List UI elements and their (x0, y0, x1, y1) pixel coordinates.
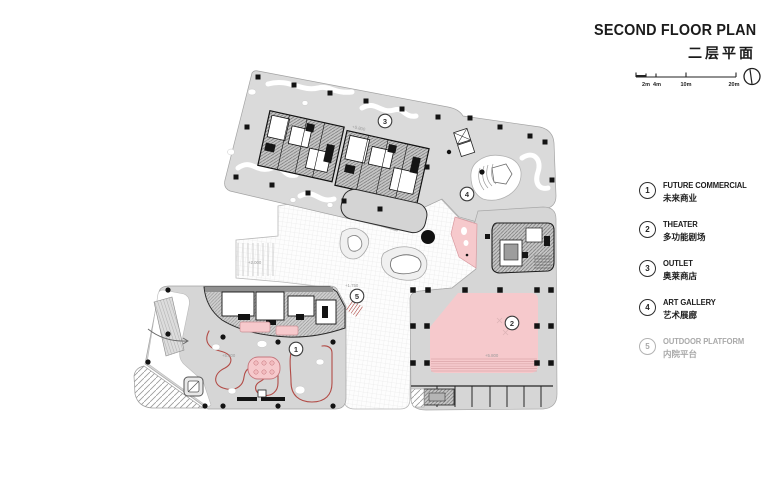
seating-table (248, 357, 280, 379)
legend-label-en: FUTURE COMMERCIAL (663, 181, 747, 190)
legend-label-en: OUTLET (663, 259, 695, 268)
legend-item-theater: 2 THEATER 多功能剧场 (639, 220, 779, 243)
legend-item-outlet: 3 OUTLET 奥莱商店 (639, 259, 779, 282)
svg-text:+1.750: +1.750 (345, 283, 359, 288)
legend-badge-5: 5 (639, 338, 656, 355)
column (485, 234, 490, 239)
escalator-bar (237, 397, 257, 401)
svg-text:+5.800: +5.800 (485, 353, 499, 358)
legend-label-zh: 内院平台 (663, 348, 748, 360)
svg-text:+5.800: +5.800 (222, 353, 236, 358)
svg-text:4m: 4m (653, 82, 661, 88)
legend-label-en: OUTDOOR PLATFORM (663, 337, 744, 346)
title-block: SECOND FLOOR PLAN 二层平面 (576, 22, 756, 63)
column-dot (447, 150, 451, 154)
wedge-blob (464, 240, 469, 246)
floor-plan-sheet: 1 2 3 4 5 +5.800 +1.750 +5.800 +5.800 +2… (0, 0, 780, 488)
svg-text:+2.000: +2.000 (248, 260, 262, 265)
legend-label-zh: 艺术展廊 (663, 309, 719, 321)
legend-label-en: THEATER (663, 220, 703, 229)
legend: 1 FUTURE COMMERCIAL 未来商业 2 THEATER 多功能剧场… (639, 181, 779, 376)
svg-text:1: 1 (294, 345, 298, 354)
page-title: SECOND FLOOR PLAN (594, 22, 756, 40)
svg-text:2m: 2m (642, 82, 650, 88)
legend-item-future-commercial: 1 FUTURE COMMERCIAL 未来商业 (639, 181, 779, 204)
legend-label-zh: 奥莱商店 (663, 270, 697, 282)
stair-core (184, 377, 203, 396)
svg-text:10m: 10m (680, 82, 691, 88)
svg-text:5: 5 (355, 292, 359, 301)
legend-badge-2: 2 (639, 221, 656, 238)
north-arrow-icon (744, 69, 760, 85)
legend-item-outdoor-platform: 5 OUTDOOR PLATFORM 内院平台 (639, 337, 779, 360)
column-dot (479, 169, 484, 174)
commercial-block (134, 286, 346, 409)
legend-badge-3: 3 (639, 260, 656, 277)
planter-inner (390, 255, 421, 274)
legend-item-art-gallery: 4 ART GALLERY 艺术展廊 (639, 298, 779, 321)
legend-badge-1: 1 (639, 182, 656, 199)
legend-label-en: ART GALLERY (663, 298, 716, 307)
legend-badge-4: 4 (639, 299, 656, 316)
plan-marker-3: 3 (378, 114, 392, 128)
plan-marker-4: 4 (460, 187, 474, 201)
column-dot (466, 254, 469, 257)
plan-marker-2: 2 (505, 316, 519, 330)
svg-text:2: 2 (510, 319, 514, 328)
plan-marker-5: 5 (350, 289, 364, 303)
svg-text:20m: 20m (728, 82, 739, 88)
wedge-blob (461, 227, 467, 235)
kiosk (258, 390, 266, 397)
svg-text:3: 3 (383, 117, 387, 126)
building-core (492, 223, 554, 273)
legend-label-zh: 未来商业 (663, 192, 751, 204)
escalator-bar (261, 397, 285, 401)
planter-inner (348, 235, 362, 251)
plan-marker-1: 1 (289, 342, 303, 356)
scale-bar: 2m 4m 10m 20m (636, 73, 740, 89)
structural-column-round (421, 230, 435, 244)
legend-label-zh: 多功能剧场 (663, 231, 706, 243)
page-title-zh: 二层平面 (576, 43, 756, 63)
